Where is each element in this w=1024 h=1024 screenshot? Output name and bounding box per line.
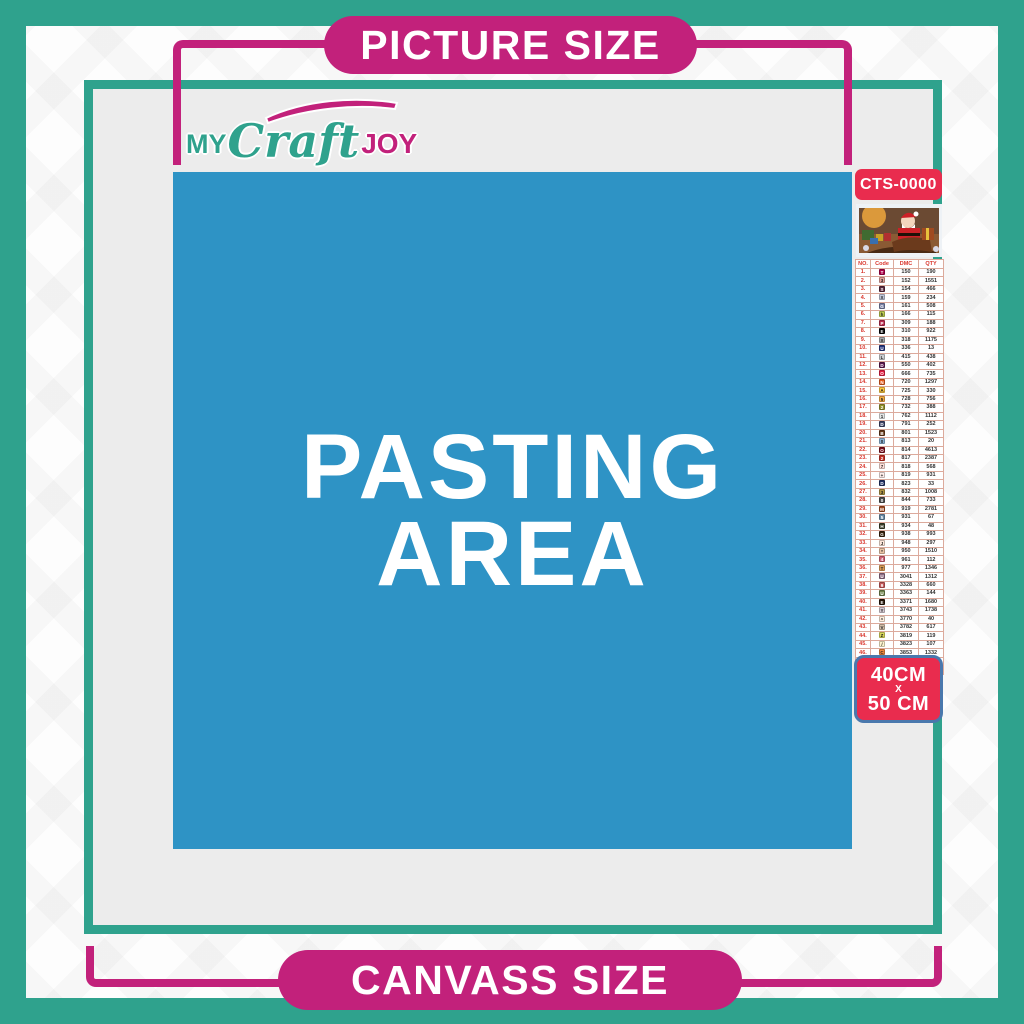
cell-code: L xyxy=(871,353,894,361)
color-symbol-swatch: h xyxy=(879,311,885,317)
cell-qty: 188 xyxy=(919,319,944,327)
cell-qty: 931 xyxy=(919,471,944,479)
cell-no: 45. xyxy=(856,640,871,648)
cell-code: A xyxy=(871,387,894,395)
color-symbol-swatch: U xyxy=(879,345,885,351)
cell-dmc: 934 xyxy=(894,522,919,530)
cell-code: D xyxy=(871,480,894,488)
cell-qty: 1523 xyxy=(919,429,944,437)
table-row: 38.93328660 xyxy=(856,581,944,589)
cell-code: / xyxy=(871,640,894,648)
cell-code: B xyxy=(871,429,894,437)
cell-code: P xyxy=(871,319,894,327)
cell-code: h xyxy=(871,311,894,319)
product-image: PASTING AREA PICTURE SIZE CANVASS SIZE M… xyxy=(0,0,1024,1024)
table-row: 10.U33613 xyxy=(856,345,944,353)
pasting-area-label-line2: AREA xyxy=(376,511,649,598)
cell-qty: 2387 xyxy=(919,454,944,462)
cell-no: 17. xyxy=(856,404,871,412)
cell-qty: 993 xyxy=(919,531,944,539)
cell-dmc: 832 xyxy=(894,488,919,496)
cell-qty: 33 xyxy=(919,480,944,488)
color-symbol-swatch: A xyxy=(879,387,885,393)
cell-qty: 1297 xyxy=(919,378,944,386)
cell-qty: 190 xyxy=(919,269,944,277)
cell-code: G xyxy=(871,531,894,539)
cell-no: 43. xyxy=(856,624,871,632)
cell-qty: 402 xyxy=(919,361,944,369)
column-header-code: Code xyxy=(871,260,894,269)
cell-dmc: 154 xyxy=(894,285,919,293)
color-symbol-swatch: D xyxy=(879,480,885,486)
table-row: 27.38321008 xyxy=(856,488,944,496)
sku-badge: CTS-0000 xyxy=(855,169,942,200)
cell-qty: 733 xyxy=(919,497,944,505)
table-row: 44.Z3819119 xyxy=(856,632,944,640)
cell-code: 7 xyxy=(871,463,894,471)
brand-logo: MYCraftJOY xyxy=(186,98,401,170)
cell-dmc: 3743 xyxy=(894,607,919,615)
pasting-area: PASTING AREA xyxy=(173,172,852,849)
cell-no: 2. xyxy=(856,277,871,285)
cell-no: 25. xyxy=(856,471,871,479)
cell-code: X xyxy=(871,336,894,344)
color-symbol-swatch: 0 xyxy=(879,438,885,444)
cell-code: U xyxy=(871,573,894,581)
cell-qty: 508 xyxy=(919,302,944,310)
color-symbol-swatch: E xyxy=(879,599,885,605)
cell-code: 4 xyxy=(871,556,894,564)
cell-dmc: 3819 xyxy=(894,632,919,640)
cell-no: 23. xyxy=(856,454,871,462)
cell-no: 19. xyxy=(856,421,871,429)
cell-code: 2 xyxy=(871,454,894,462)
cell-qty: 48 xyxy=(919,522,944,530)
cell-code: O xyxy=(871,446,894,454)
color-symbol-swatch: X xyxy=(879,337,885,343)
cell-dmc: 150 xyxy=(894,269,919,277)
color-symbol-swatch: * xyxy=(879,548,885,554)
cell-no: 5. xyxy=(856,302,871,310)
cell-dmc: 415 xyxy=(894,353,919,361)
cell-code: J xyxy=(871,539,894,547)
cell-dmc: 3823 xyxy=(894,640,919,648)
color-symbol-swatch: V xyxy=(879,624,885,630)
cell-code: T xyxy=(871,564,894,572)
cell-dmc: 931 xyxy=(894,514,919,522)
cell-qty: 735 xyxy=(919,370,944,378)
color-symbol-swatch: Y xyxy=(879,607,885,613)
cell-dmc: 948 xyxy=(894,539,919,547)
cell-dmc: 152 xyxy=(894,277,919,285)
cell-dmc: 309 xyxy=(894,319,919,327)
cell-no: 41. xyxy=(856,607,871,615)
table-row: 12.D550402 xyxy=(856,361,944,369)
table-row: 31.H93448 xyxy=(856,522,944,530)
cell-code: 2 xyxy=(871,404,894,412)
cell-qty: 330 xyxy=(919,387,944,395)
cell-no: 4. xyxy=(856,294,871,302)
cell-qty: 1008 xyxy=(919,488,944,496)
cell-dmc: 3770 xyxy=(894,615,919,623)
cell-no: 26. xyxy=(856,480,871,488)
cell-no: 37. xyxy=(856,573,871,581)
cell-qty: 67 xyxy=(919,514,944,522)
cell-no: 31. xyxy=(856,522,871,530)
cell-dmc: 310 xyxy=(894,328,919,336)
cell-dmc: 3782 xyxy=(894,624,919,632)
cell-dmc: 844 xyxy=(894,497,919,505)
cell-code: E xyxy=(871,598,894,606)
color-symbol-swatch: 2 xyxy=(879,404,885,410)
cell-code: S xyxy=(871,285,894,293)
table-row: 3.S154466 xyxy=(856,285,944,293)
cell-qty: 617 xyxy=(919,624,944,632)
table-row: 43.V3782617 xyxy=(856,624,944,632)
cell-dmc: 919 xyxy=(894,505,919,513)
table-row: 45./3823107 xyxy=(856,640,944,648)
cell-qty: 1312 xyxy=(919,573,944,581)
color-symbol-swatch: B xyxy=(879,430,885,436)
cell-dmc: 3371 xyxy=(894,598,919,606)
table-row: 19.D791252 xyxy=(856,421,944,429)
cell-dmc: 666 xyxy=(894,370,919,378)
cell-dmc: 813 xyxy=(894,438,919,446)
cell-no: 11. xyxy=(856,353,871,361)
cell-dmc: 336 xyxy=(894,345,919,353)
cell-qty: 1346 xyxy=(919,564,944,572)
color-symbol-swatch: N xyxy=(879,379,885,385)
table-row: 20.B8011523 xyxy=(856,429,944,437)
canvass-size-banner: CANVASS SIZE xyxy=(278,950,742,1010)
dmc-color-table: NO. Code DMC QTY 1.T1501902.315215513.S1… xyxy=(855,259,944,675)
cell-qty: 1175 xyxy=(919,336,944,344)
cell-dmc: 3363 xyxy=(894,590,919,598)
cell-no: 32. xyxy=(856,531,871,539)
cell-code: 0 xyxy=(871,497,894,505)
color-symbol-swatch: J xyxy=(879,540,885,546)
table-row: 13.O666735 xyxy=(856,370,944,378)
cell-no: 44. xyxy=(856,632,871,640)
color-symbol-swatch: 5 xyxy=(879,396,885,402)
table-row: 7.P309188 xyxy=(856,319,944,327)
cell-qty: 466 xyxy=(919,285,944,293)
table-row: 17.2732388 xyxy=(856,404,944,412)
cell-dmc: 762 xyxy=(894,412,919,420)
cell-code: Y xyxy=(871,607,894,615)
table-row: 39.U3363144 xyxy=(856,590,944,598)
table-row: 33.J948297 xyxy=(856,539,944,547)
table-row: 1.T150190 xyxy=(856,269,944,277)
color-symbol-swatch: M xyxy=(879,506,885,512)
cell-code: E xyxy=(871,328,894,336)
cell-no: 8. xyxy=(856,328,871,336)
color-symbol-swatch: X xyxy=(879,294,885,300)
cell-code: D xyxy=(871,361,894,369)
color-symbol-swatch: T xyxy=(879,565,885,571)
table-row: 35.4961112 xyxy=(856,556,944,564)
table-row: 2.31521551 xyxy=(856,277,944,285)
picture-size-banner: PICTURE SIZE xyxy=(324,16,697,74)
cell-code: O xyxy=(871,370,894,378)
table-row: 23.28172387 xyxy=(856,454,944,462)
table-row: 18.17621112 xyxy=(856,412,944,420)
cell-code: V xyxy=(871,624,894,632)
pasting-area-label-line1: PASTING xyxy=(301,424,724,511)
cell-qty: 660 xyxy=(919,581,944,589)
cell-code: U xyxy=(871,345,894,353)
cell-code: G xyxy=(871,302,894,310)
color-symbol-swatch: H xyxy=(879,523,885,529)
cell-code: H xyxy=(871,522,894,530)
cell-code: 1 xyxy=(871,412,894,420)
table-row: 5.G161508 xyxy=(856,302,944,310)
table-row: 8.E310922 xyxy=(856,328,944,336)
cell-dmc: 166 xyxy=(894,311,919,319)
cell-code: X xyxy=(871,294,894,302)
cell-qty: 568 xyxy=(919,463,944,471)
cell-code: 9 xyxy=(871,581,894,589)
table-row: 30.593167 xyxy=(856,514,944,522)
size-line2: 50 CM xyxy=(868,694,929,714)
cell-code: U xyxy=(871,590,894,598)
cell-no: 35. xyxy=(856,556,871,564)
cell-no: 7. xyxy=(856,319,871,327)
cell-qty: 1738 xyxy=(919,607,944,615)
table-row: 36.T9771346 xyxy=(856,564,944,572)
cell-qty: 2781 xyxy=(919,505,944,513)
cell-qty: 297 xyxy=(919,539,944,547)
cell-qty: 438 xyxy=(919,353,944,361)
cell-code: 3 xyxy=(871,488,894,496)
logo-word-joy: JOY xyxy=(361,128,417,159)
cell-no: 30. xyxy=(856,514,871,522)
sku-label: CTS-0000 xyxy=(860,176,937,194)
cell-dmc: 732 xyxy=(894,404,919,412)
cell-dmc: 961 xyxy=(894,556,919,564)
cell-qty: 4613 xyxy=(919,446,944,454)
color-symbol-swatch: 7 xyxy=(879,463,885,469)
table-row: 25.+819931 xyxy=(856,471,944,479)
cell-no: 42. xyxy=(856,615,871,623)
cell-no: 20. xyxy=(856,429,871,437)
column-header-no: NO. xyxy=(856,260,871,269)
table-header-row: NO. Code DMC QTY xyxy=(856,260,944,269)
cell-no: 16. xyxy=(856,395,871,403)
color-symbol-swatch: L xyxy=(879,354,885,360)
color-symbol-swatch: 3 xyxy=(879,277,885,283)
cell-no: 6. xyxy=(856,311,871,319)
cell-no: 34. xyxy=(856,547,871,555)
color-symbol-swatch: S xyxy=(879,286,885,292)
color-symbol-swatch: 3 xyxy=(879,489,885,495)
picture-size-label: PICTURE SIZE xyxy=(360,22,660,69)
table-row: 40.E33711680 xyxy=(856,598,944,606)
color-symbol-swatch: D xyxy=(879,421,885,427)
cell-dmc: 950 xyxy=(894,547,919,555)
color-symbol-swatch: + xyxy=(879,472,885,478)
table-row: 24.7818568 xyxy=(856,463,944,471)
column-header-qty: QTY xyxy=(919,260,944,269)
cell-dmc: 977 xyxy=(894,564,919,572)
cell-code: 5 xyxy=(871,395,894,403)
color-symbol-swatch: O xyxy=(879,447,885,453)
cell-code: + xyxy=(871,471,894,479)
table-row: 21.081320 xyxy=(856,438,944,446)
cell-qty: 144 xyxy=(919,590,944,598)
color-symbol-swatch: E xyxy=(879,328,885,334)
cell-no: 33. xyxy=(856,539,871,547)
product-thumbnail xyxy=(856,204,942,257)
logo-word-my: MY xyxy=(186,129,227,159)
cell-no: 12. xyxy=(856,361,871,369)
cell-no: 28. xyxy=(856,497,871,505)
cell-dmc: 161 xyxy=(894,302,919,310)
color-symbol-swatch: T xyxy=(879,269,885,275)
table-row: 14.N7201297 xyxy=(856,378,944,386)
cell-no: 10. xyxy=(856,345,871,353)
column-header-dmc: DMC xyxy=(894,260,919,269)
cell-dmc: 318 xyxy=(894,336,919,344)
table-row: 28.0844733 xyxy=(856,497,944,505)
cell-no: 39. xyxy=(856,590,871,598)
cell-qty: 112 xyxy=(919,556,944,564)
color-symbol-swatch: U xyxy=(879,590,885,596)
cell-qty: 388 xyxy=(919,404,944,412)
cell-code: 0 xyxy=(871,438,894,446)
table-row: 37.U30411312 xyxy=(856,573,944,581)
cell-qty: 40 xyxy=(919,615,944,623)
cell-dmc: 938 xyxy=(894,531,919,539)
cell-qty: 234 xyxy=(919,294,944,302)
cell-dmc: 818 xyxy=(894,463,919,471)
cell-qty: 119 xyxy=(919,632,944,640)
cell-no: 18. xyxy=(856,412,871,420)
color-symbol-swatch: U xyxy=(879,573,885,579)
cell-code: * xyxy=(871,547,894,555)
color-symbol-swatch: Z xyxy=(879,632,885,638)
size-line1: 40CM xyxy=(871,665,926,685)
cell-dmc: 801 xyxy=(894,429,919,437)
table-row: 11.L415438 xyxy=(856,353,944,361)
cell-code: Z xyxy=(871,632,894,640)
cell-no: 14. xyxy=(856,378,871,386)
cell-qty: 252 xyxy=(919,421,944,429)
cell-no: 24. xyxy=(856,463,871,471)
color-symbol-swatch: 9 xyxy=(879,582,885,588)
cell-no: 21. xyxy=(856,438,871,446)
color-symbol-swatch: P xyxy=(879,320,885,326)
table-row: 42.^377040 xyxy=(856,615,944,623)
cell-qty: 115 xyxy=(919,311,944,319)
table-row: 26.D82333 xyxy=(856,480,944,488)
cell-dmc: 3041 xyxy=(894,573,919,581)
cell-dmc: 720 xyxy=(894,378,919,386)
cell-qty: 1680 xyxy=(919,598,944,606)
cell-qty: 1112 xyxy=(919,412,944,420)
color-symbol-swatch: G xyxy=(879,531,885,537)
cell-no: 9. xyxy=(856,336,871,344)
cell-no: 3. xyxy=(856,285,871,293)
cell-no: 13. xyxy=(856,370,871,378)
cell-code: 3 xyxy=(871,277,894,285)
cell-dmc: 817 xyxy=(894,454,919,462)
table-row: 9.X3181175 xyxy=(856,336,944,344)
color-symbol-swatch: 2 xyxy=(879,455,885,461)
cell-qty: 13 xyxy=(919,345,944,353)
table-row: 16.5728756 xyxy=(856,395,944,403)
canvass-size-label: CANVASS SIZE xyxy=(351,957,669,1004)
cell-dmc: 791 xyxy=(894,421,919,429)
cell-no: 29. xyxy=(856,505,871,513)
cell-qty: 756 xyxy=(919,395,944,403)
cell-qty: 1551 xyxy=(919,277,944,285)
cell-qty: 922 xyxy=(919,328,944,336)
cell-dmc: 3328 xyxy=(894,581,919,589)
table-row: 15.A725330 xyxy=(856,387,944,395)
table-row: 41.Y37431738 xyxy=(856,607,944,615)
cell-dmc: 550 xyxy=(894,361,919,369)
cell-dmc: 159 xyxy=(894,294,919,302)
cell-dmc: 819 xyxy=(894,471,919,479)
cell-no: 15. xyxy=(856,387,871,395)
table-row: 29.M9192781 xyxy=(856,505,944,513)
color-table-body: 1.T1501902.315215513.S1544664.X1592345.G… xyxy=(856,269,944,675)
logo-word-craft: Craft xyxy=(228,114,360,168)
color-symbol-swatch: ^ xyxy=(879,616,885,622)
cell-no: 36. xyxy=(856,564,871,572)
color-symbol-swatch: / xyxy=(879,641,885,647)
cell-code: N xyxy=(871,378,894,386)
color-symbol-swatch: 0 xyxy=(879,497,885,503)
cell-qty: 107 xyxy=(919,640,944,648)
cell-code: T xyxy=(871,269,894,277)
color-symbol-swatch: 4 xyxy=(879,556,885,562)
cell-no: 38. xyxy=(856,581,871,589)
size-badge: 40CM X 50 CM xyxy=(854,655,943,723)
color-symbol-swatch: 5 xyxy=(879,514,885,520)
cell-code: 5 xyxy=(871,514,894,522)
cell-dmc: 728 xyxy=(894,395,919,403)
cell-code: D xyxy=(871,421,894,429)
cell-no: 40. xyxy=(856,598,871,606)
cell-no: 27. xyxy=(856,488,871,496)
table-row: 22.O8144613 xyxy=(856,446,944,454)
cell-dmc: 814 xyxy=(894,446,919,454)
table-row: 4.X159234 xyxy=(856,294,944,302)
cell-no: 22. xyxy=(856,446,871,454)
cell-no: 1. xyxy=(856,269,871,277)
cell-dmc: 823 xyxy=(894,480,919,488)
table-row: 32.G938993 xyxy=(856,531,944,539)
table-row: 34.*9501510 xyxy=(856,547,944,555)
color-symbol-swatch: O xyxy=(879,370,885,376)
color-symbol-swatch: G xyxy=(879,303,885,309)
color-symbol-swatch: 1 xyxy=(879,413,885,419)
cell-dmc: 725 xyxy=(894,387,919,395)
cell-code: M xyxy=(871,505,894,513)
cell-qty: 1510 xyxy=(919,547,944,555)
cell-code: ^ xyxy=(871,615,894,623)
table-row: 6.h166115 xyxy=(856,311,944,319)
cell-qty: 20 xyxy=(919,438,944,446)
color-symbol-swatch: D xyxy=(879,362,885,368)
